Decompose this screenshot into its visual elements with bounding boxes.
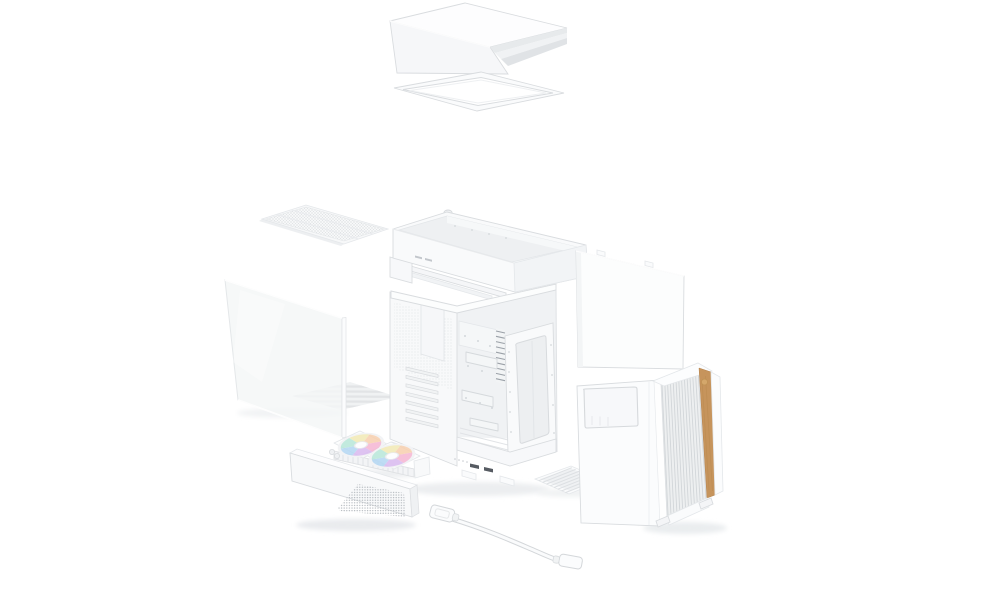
right-panel-face — [576, 251, 684, 369]
chassis-rear-bracket — [421, 303, 444, 361]
radiator-end-tank — [414, 457, 430, 478]
chassis-usb-port-1 — [470, 464, 479, 470]
front-cover-end-cap — [410, 485, 419, 517]
connector-right-body — [558, 554, 583, 570]
connector-right-nub — [553, 556, 560, 564]
front-cover-shadow — [296, 519, 416, 531]
top-filter-frame — [394, 72, 564, 111]
exploded-view-scene — [0, 0, 1000, 590]
product-render-canvas — [0, 0, 1000, 590]
radiator-fitting-2 — [334, 453, 339, 458]
connector-left-body — [429, 504, 455, 522]
chassis-usb-port-2 — [484, 467, 493, 473]
right-panel-tab-2 — [645, 261, 653, 268]
cable-connector-left — [429, 504, 460, 524]
right-side-panel — [576, 250, 684, 369]
top-cover — [390, 3, 567, 74]
chassis-foot-mid — [462, 470, 476, 480]
front-panel — [577, 363, 723, 527]
connector-left-nub — [452, 513, 460, 521]
glass-thickness-edge — [342, 318, 346, 439]
chassis-shadow — [406, 482, 550, 496]
io-cable — [429, 504, 583, 569]
cable-wire — [452, 519, 561, 561]
radiator-fitting-1 — [329, 449, 334, 454]
front-panel-logo-badge — [702, 379, 708, 385]
cable-connector-right — [552, 553, 583, 570]
radiator-tray — [390, 210, 588, 300]
chassis-front-right-edge — [556, 290, 557, 452]
top-mesh-filter — [259, 205, 388, 246]
